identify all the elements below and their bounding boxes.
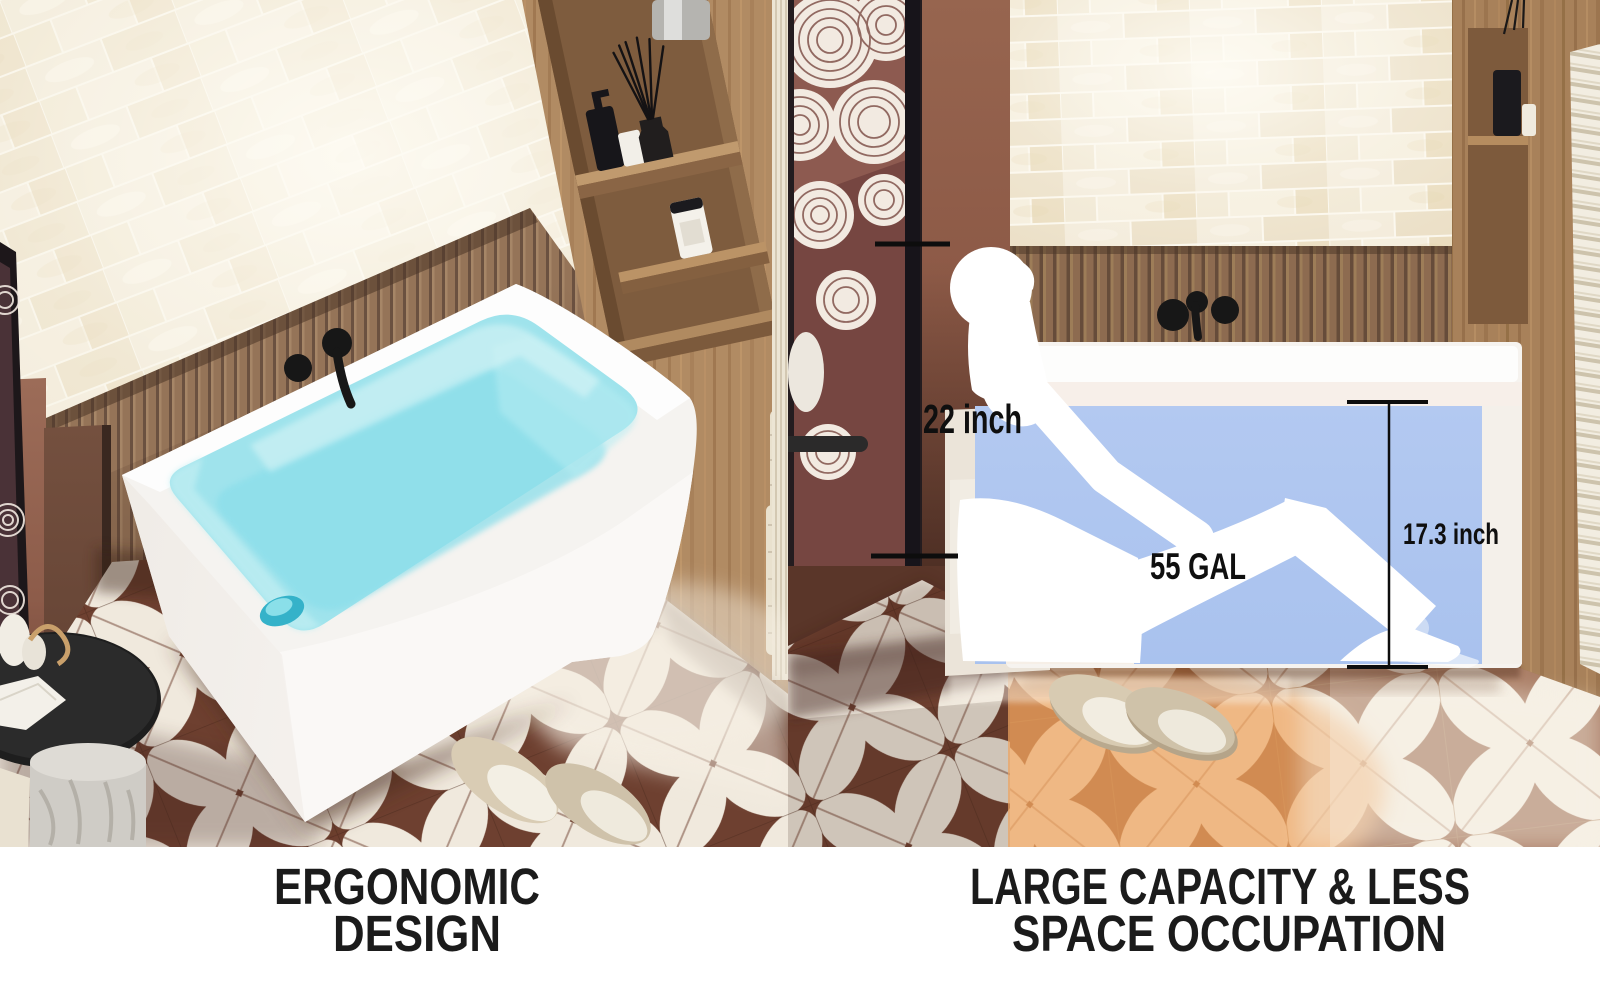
svg-text:22 inch: 22 inch xyxy=(923,396,1022,442)
svg-text:DESIGN: DESIGN xyxy=(333,905,501,962)
svg-text:17.3 inch: 17.3 inch xyxy=(1403,518,1499,551)
svg-text:55 GAL: 55 GAL xyxy=(1150,546,1246,587)
svg-text:SPACE OCCUPATION: SPACE OCCUPATION xyxy=(1012,905,1446,962)
